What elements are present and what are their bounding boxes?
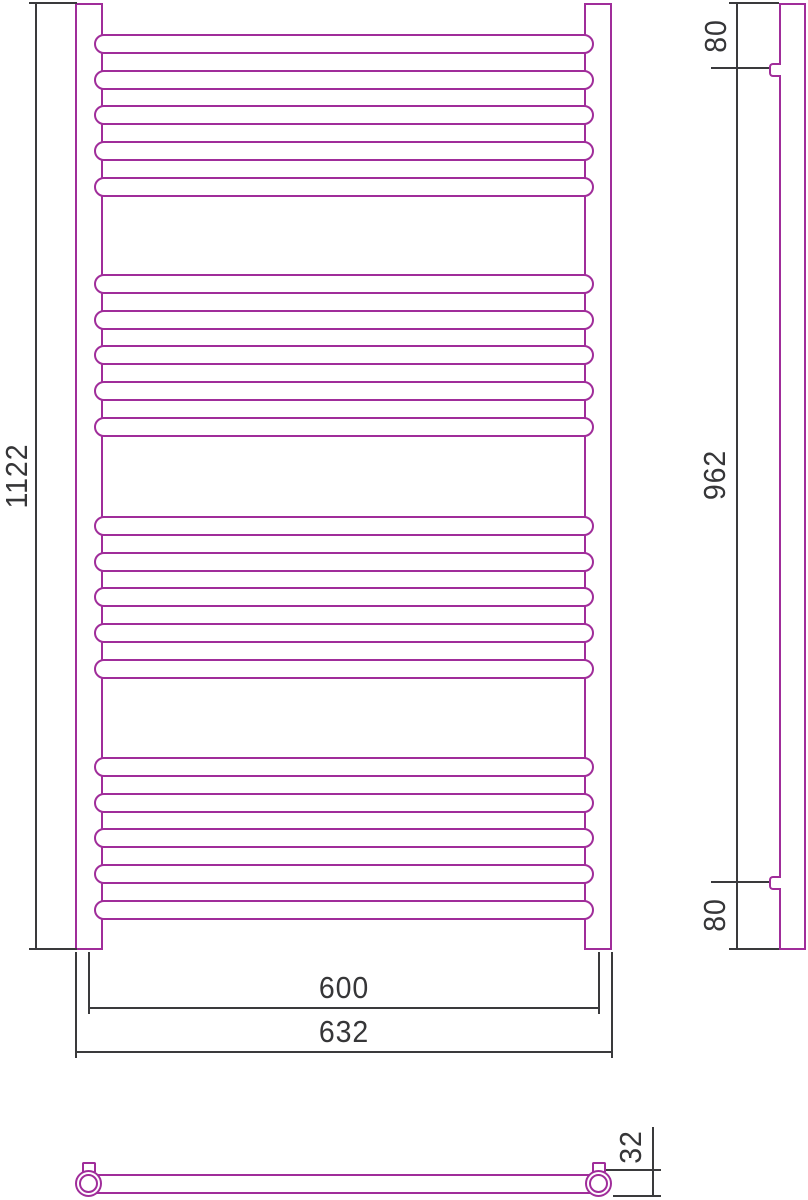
rung: [94, 310, 594, 330]
dim-632-ext-left: [75, 952, 77, 1058]
dim-height-tick-bottom: [29, 948, 77, 950]
rung: [94, 417, 594, 437]
dim-bracket-bottom-offset-label: 80: [697, 898, 733, 932]
rung: [94, 70, 594, 90]
dim-32-line: [652, 1127, 654, 1197]
dim-600-ext-right: [598, 952, 600, 1014]
rung: [94, 552, 594, 572]
technical-drawing: 1122 600 632 80 962 80 32: [0, 0, 808, 1200]
dim-height-tick-top: [29, 2, 77, 4]
dim-side-tick-bottom: [729, 948, 779, 950]
rung: [94, 793, 594, 813]
side-view-bracket-bottom: [769, 876, 781, 890]
rung: [94, 34, 594, 54]
dim-side-tick-upper: [711, 67, 769, 69]
dim-600-ext-left: [88, 952, 90, 1014]
dim-tube-diameter-label: 32: [613, 1130, 649, 1164]
rung: [94, 516, 594, 536]
dim-bracket-top-offset-label: 80: [698, 19, 734, 53]
rung: [94, 864, 594, 884]
rung: [94, 141, 594, 161]
rung: [94, 757, 594, 777]
rung: [94, 623, 594, 643]
rung: [94, 828, 594, 848]
dim-rail-spacing-label: 600: [319, 970, 369, 1006]
rung: [94, 105, 594, 125]
dim-overall-width-label: 632: [319, 1014, 369, 1050]
rung: [94, 587, 594, 607]
side-view-bracket-top: [769, 63, 781, 77]
dim-height-line: [35, 3, 37, 950]
rung: [94, 177, 594, 197]
dim-632-line: [75, 1051, 613, 1053]
bottom-view-left-tube-inner: [79, 1174, 98, 1193]
dim-600-line: [88, 1007, 600, 1009]
rung: [94, 659, 594, 679]
bottom-view-right-tube-inner: [589, 1174, 608, 1193]
side-view-tube: [779, 3, 806, 950]
rung: [94, 345, 594, 365]
rung: [94, 900, 594, 920]
rung: [94, 274, 594, 294]
dim-bracket-spacing-label: 962: [697, 450, 733, 500]
bottom-view-tube: [95, 1174, 592, 1194]
dim-overall-height-label: 1122: [0, 443, 35, 508]
dim-side-line: [736, 3, 738, 950]
dim-side-tick-top: [729, 2, 779, 4]
dim-632-ext-right: [611, 952, 613, 1058]
rung: [94, 381, 594, 401]
dim-side-tick-lower: [711, 881, 769, 883]
